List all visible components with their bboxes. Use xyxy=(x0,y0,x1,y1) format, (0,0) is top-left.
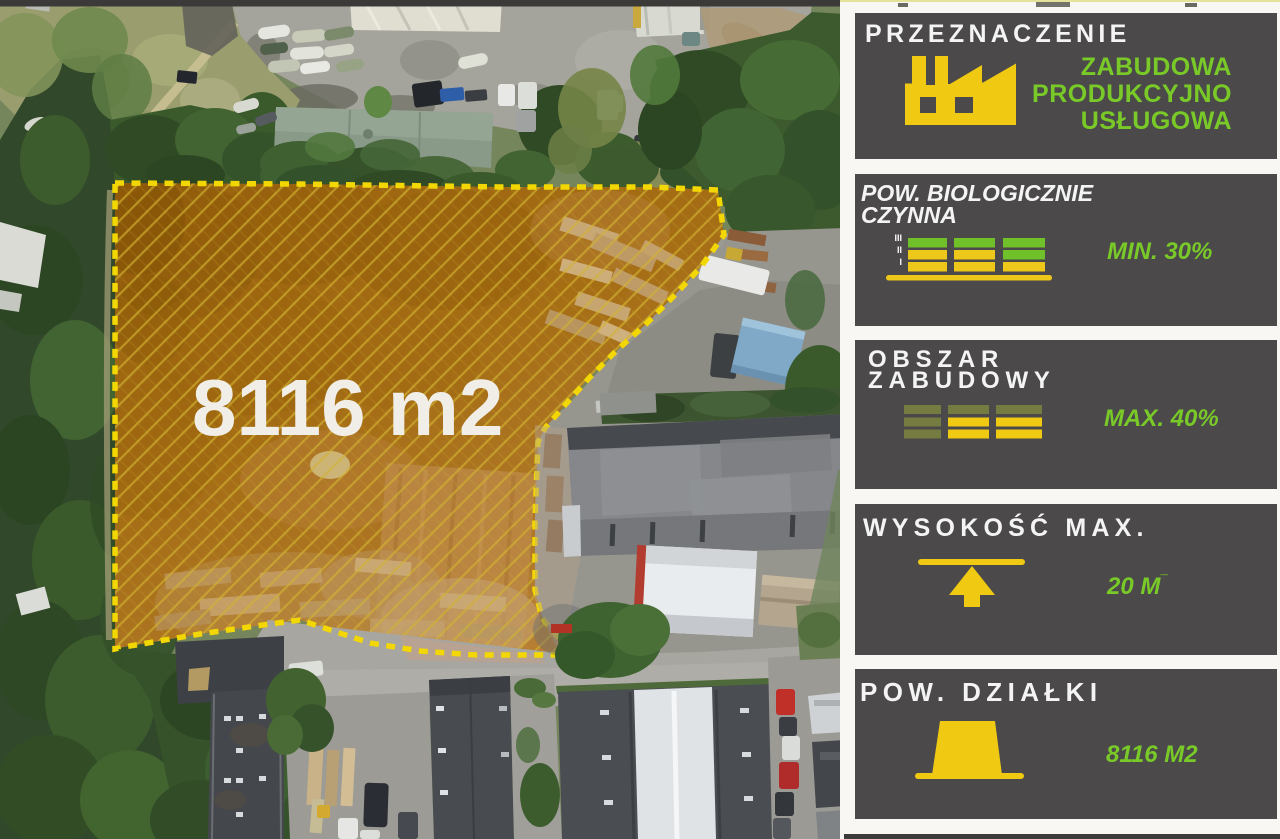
svg-text:I: I xyxy=(899,257,902,267)
svg-text:II: II xyxy=(897,245,902,255)
svg-text:8116 m2: 8116 m2 xyxy=(192,363,503,452)
svg-text:III: III xyxy=(894,233,902,243)
